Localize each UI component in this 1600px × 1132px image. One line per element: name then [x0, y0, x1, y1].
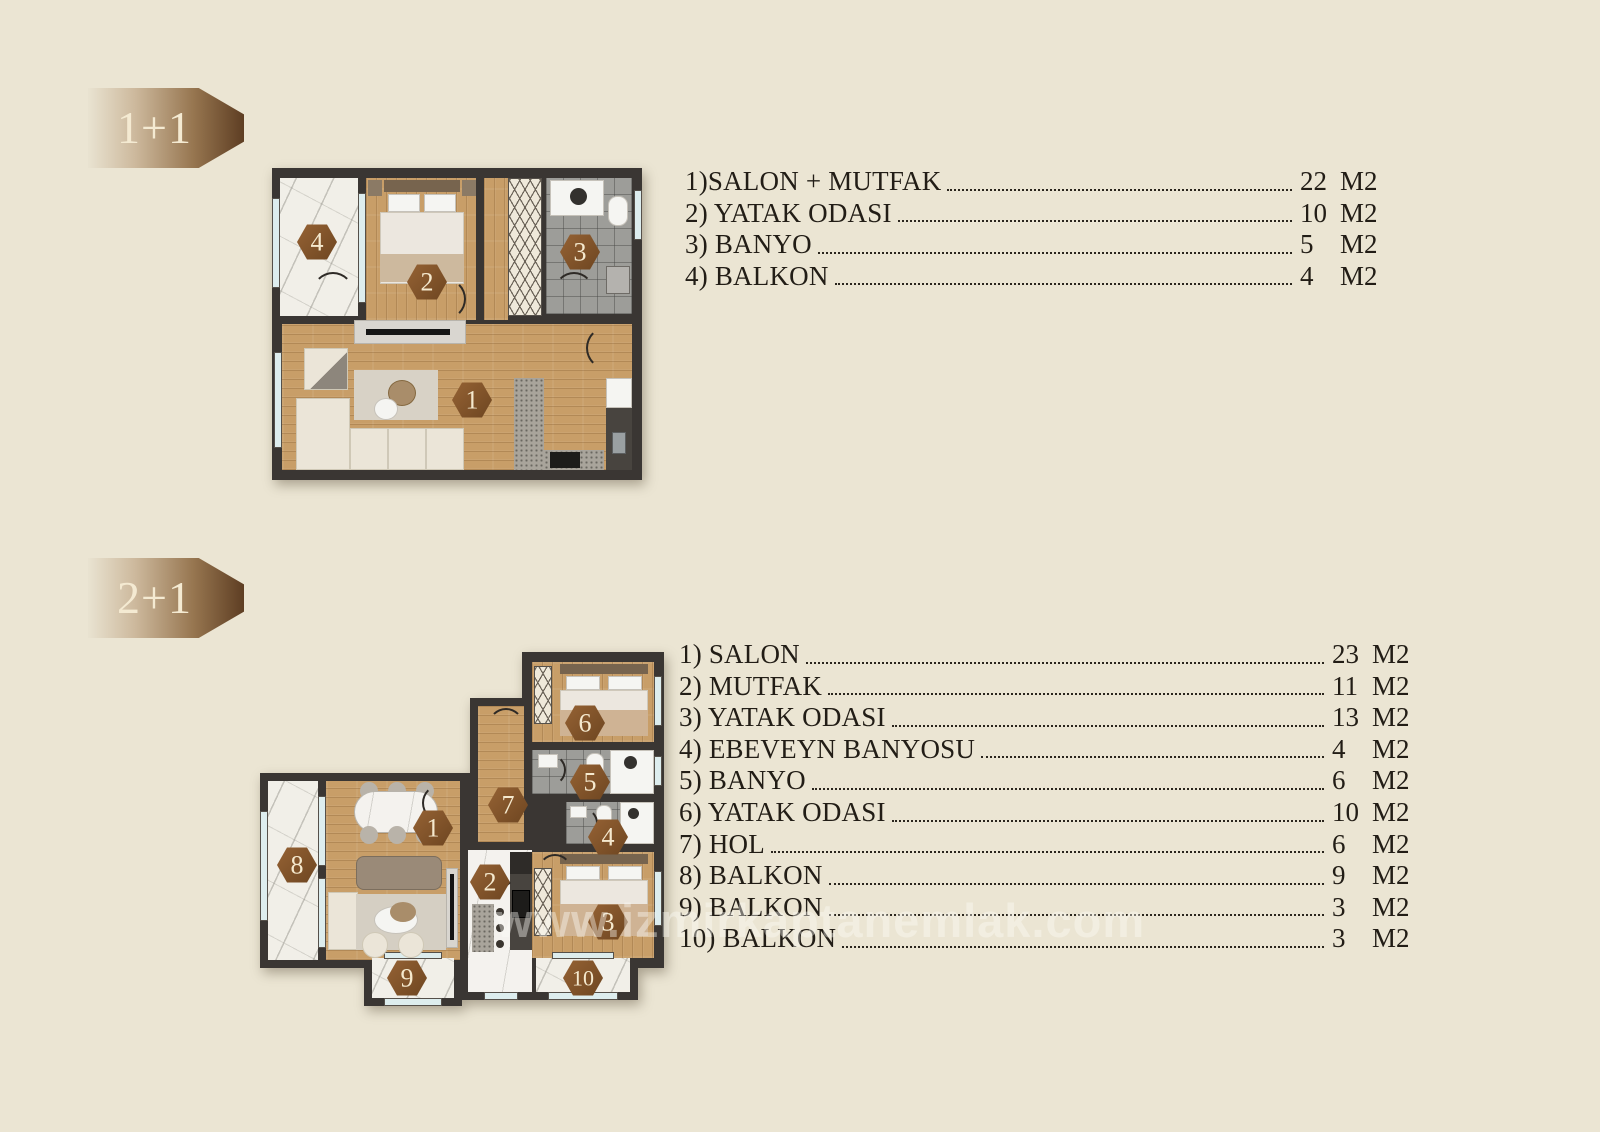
bed-headboard [560, 664, 648, 674]
room-row: 4) EBEVEYN BANYOSU 4 M2 [679, 734, 1418, 766]
room-area-value: 4 [1300, 261, 1340, 293]
dotted-leader [829, 883, 1324, 885]
plan1-living-window [274, 352, 282, 448]
lounge-chair [304, 348, 348, 390]
kitchen-balcony-door [484, 992, 518, 1000]
bedroom6-door-arc [488, 708, 524, 744]
toilet [608, 196, 628, 226]
area-unit: M2 [1372, 892, 1418, 924]
tv [366, 329, 450, 335]
dotted-leader [892, 725, 1324, 727]
bed-pillow [608, 866, 642, 880]
sink-basin [570, 188, 587, 205]
salon-balcony-glass [318, 878, 326, 948]
area-unit: M2 [1340, 229, 1386, 261]
coffee-table [374, 398, 398, 420]
area-unit: M2 [1372, 923, 1418, 955]
area-unit: M2 [1340, 198, 1386, 230]
floor-plan-2p1: 1 2 3 4 5 6 7 8 9 10 [256, 616, 666, 1008]
bed-headboard [384, 180, 460, 192]
room-label: 2) MUTFAK [679, 671, 822, 703]
bath5-door-arc [534, 754, 566, 786]
room-label: 3) BANYO [685, 229, 812, 261]
tv [450, 874, 454, 940]
room-list-1p1: 1)SALON + MUTFAK 22 M2 2) YATAK ODASI 10… [685, 166, 1386, 292]
bed-pillow [566, 676, 600, 690]
area-unit: M2 [1340, 261, 1386, 293]
bed-headboard [560, 854, 648, 864]
room-row: 4) BALKON 4 M2 [685, 261, 1386, 293]
kitchen-sink [612, 432, 626, 454]
dotted-leader [771, 851, 1324, 853]
sofa-chaise [296, 398, 350, 470]
coffee-table [390, 902, 416, 922]
dotted-leader [835, 283, 1292, 285]
room-label: 5) BANYO [679, 765, 806, 797]
room-area-value: 22 [1300, 166, 1340, 198]
area-unit: M2 [1372, 797, 1418, 829]
kitchen-counter [514, 378, 544, 470]
room-row: 2) MUTFAK 11 M2 [679, 671, 1418, 703]
dotted-leader [981, 756, 1324, 758]
sofa [350, 428, 464, 470]
plan1-hall-floor [484, 178, 508, 320]
room-area-value: 3 [1332, 923, 1372, 955]
room-area-value: 6 [1332, 829, 1372, 861]
floor-plan-1p1: 1 2 3 4 [272, 168, 642, 486]
plan1-balcony-door-glass [358, 193, 366, 303]
room-area-value: 10 [1300, 198, 1340, 230]
bedroom3-balcony10-glass [552, 952, 614, 959]
room-area-value: 3 [1332, 892, 1372, 924]
room-row: 6) YATAK ODASI 10 M2 [679, 797, 1418, 829]
dotted-leader [947, 189, 1292, 191]
dining-chair [360, 826, 378, 844]
balcony8-window [260, 811, 268, 921]
unit-type-badge-2p1: 2+1 [88, 558, 244, 638]
room-label: 4) EBEVEYN BANYOSU [679, 734, 975, 766]
bedroom3-door-arc [538, 854, 572, 888]
bed-pillow [424, 194, 456, 212]
area-unit: M2 [1372, 829, 1418, 861]
dining-chair [388, 826, 406, 844]
room-row: 1) SALON 23 M2 [679, 639, 1418, 671]
dotted-leader [898, 220, 1292, 222]
watermark-text: www.izmirkaptanemlak.com [496, 893, 1145, 948]
room-row: 8) BALKON 9 M2 [679, 860, 1418, 892]
room-row: 3) BANYO 5 M2 [685, 229, 1386, 261]
sink-basin [624, 756, 637, 769]
dotted-leader [812, 788, 1324, 790]
room-row: 1)SALON + MUTFAK 22 M2 [685, 166, 1386, 198]
room-area-value: 4 [1332, 734, 1372, 766]
room-area-value: 5 [1300, 229, 1340, 261]
area-unit: M2 [1372, 860, 1418, 892]
nightstand [462, 180, 476, 196]
area-unit: M2 [1372, 671, 1418, 703]
dotted-leader [828, 693, 1324, 695]
nightstand [368, 180, 382, 196]
unit-type-badge-1p1: 1+1 [88, 88, 244, 168]
badge-label: 1+1 [117, 105, 244, 151]
area-unit: M2 [1340, 166, 1386, 198]
brochure-page: { "page": { "watermark": "www.izmirkapta… [0, 0, 1600, 1132]
room-label: 8) BALKON [679, 860, 823, 892]
dotted-leader [892, 820, 1324, 822]
room-label: 1)SALON + MUTFAK [685, 166, 941, 198]
bed-pillow [388, 194, 420, 212]
washing-machine [606, 266, 630, 294]
room-area-value: 13 [1332, 702, 1372, 734]
area-unit: M2 [1372, 702, 1418, 734]
wardrobe [534, 666, 552, 724]
room-row: 5) BANYO 6 M2 [679, 765, 1418, 797]
bedroom6-window [654, 676, 662, 726]
balcony-door-arc [312, 272, 354, 314]
chaise [328, 892, 358, 950]
room-label: 6) YATAK ODASI [679, 797, 886, 829]
area-unit: M2 [1372, 765, 1418, 797]
room-label: 2) YATAK ODASI [685, 198, 892, 230]
room-label: 7) HOL [679, 829, 765, 861]
sink-basin [628, 808, 639, 819]
room-area-value: 23 [1332, 639, 1372, 671]
room-label: 4) BALKON [685, 261, 829, 293]
stove [550, 452, 580, 468]
salon-balcony-glass [318, 796, 326, 866]
area-unit: M2 [1372, 639, 1418, 671]
room-label: 1) SALON [679, 639, 800, 671]
room-area-value: 11 [1332, 671, 1372, 703]
balcony9-rail [384, 998, 442, 1006]
barrel-chair [362, 932, 388, 958]
room-area-value: 10 [1332, 797, 1372, 829]
area-unit: M2 [1372, 734, 1418, 766]
room-row: 7) HOL 6 M2 [679, 829, 1418, 861]
dotted-leader [818, 252, 1292, 254]
room-area-value: 6 [1332, 765, 1372, 797]
sofa [356, 856, 442, 890]
room-area-value: 9 [1332, 860, 1372, 892]
bed-pillow [608, 676, 642, 690]
room-row: 3) YATAK ODASI 13 M2 [679, 702, 1418, 734]
dotted-leader [806, 662, 1324, 664]
plan1-bathroom-window [634, 190, 642, 240]
barrel-chair [398, 932, 424, 958]
room-row: 2) YATAK ODASI 10 M2 [685, 198, 1386, 230]
badge-label: 2+1 [117, 575, 244, 621]
bathroom-door-arc [554, 272, 594, 312]
bath5-window [654, 756, 662, 786]
plan1-wardrobe [508, 178, 542, 316]
fridge [606, 378, 632, 408]
plan1-balcony-window [272, 198, 280, 288]
entrance-door-arc [586, 326, 630, 370]
kitchen-island [472, 904, 494, 952]
room-label: 3) YATAK ODASI [679, 702, 886, 734]
